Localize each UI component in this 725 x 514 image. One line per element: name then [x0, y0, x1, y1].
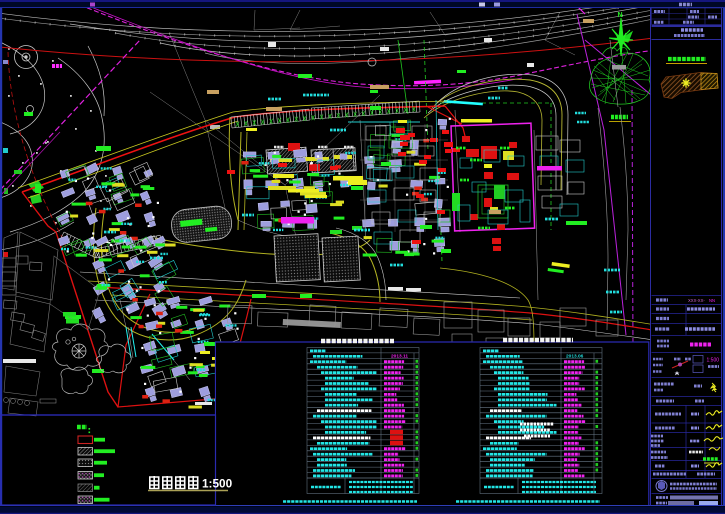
svg-text:1:500: 1:500 [202, 477, 233, 491]
svg-text:XXX-XX-: XXX-XX- [688, 298, 705, 303]
svg-text:2013.11: 2013.11 [391, 354, 408, 360]
svg-text:N: N [618, 12, 623, 19]
svg-text:2013.06: 2013.06 [566, 354, 584, 360]
svg-text:1:500: 1:500 [707, 358, 720, 364]
svg-text:NN: NN [709, 298, 715, 303]
